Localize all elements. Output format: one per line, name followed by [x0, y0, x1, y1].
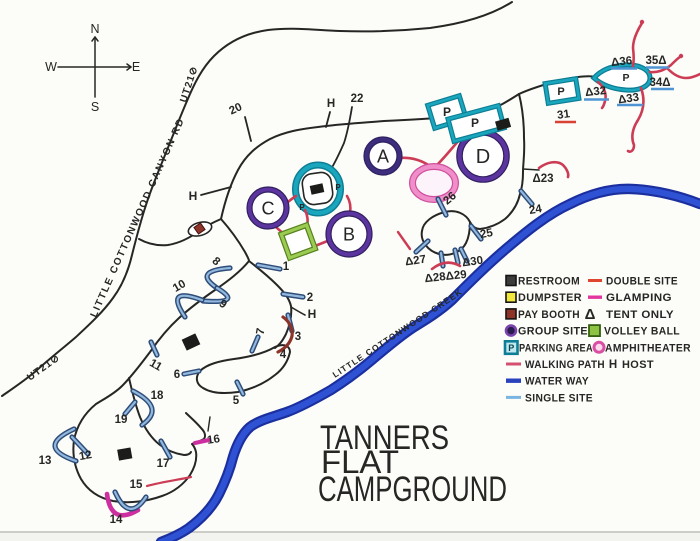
svg-text:18: 18 [151, 390, 164, 402]
svg-text:GROUP SITE: GROUP SITE [518, 326, 588, 338]
svg-text:B: B [343, 224, 355, 244]
svg-text:DUMPSTER: DUMPSTER [518, 292, 582, 304]
svg-text:AMPHITHEATER: AMPHITHEATER [605, 342, 691, 354]
svg-text:SINGLE SITE: SINGLE SITE [525, 392, 593, 404]
svg-text:HOST: HOST [622, 359, 654, 371]
svg-text:19: 19 [115, 414, 128, 426]
svg-text:P: P [557, 86, 564, 98]
svg-text:34Δ: 34Δ [649, 77, 670, 89]
svg-text:D: D [476, 146, 490, 168]
svg-text:A: A [377, 146, 389, 166]
svg-text:13: 13 [39, 455, 52, 467]
svg-text:4: 4 [280, 349, 287, 361]
svg-text:1: 1 [283, 261, 290, 273]
svg-text:31: 31 [556, 108, 571, 122]
svg-text:W: W [45, 60, 57, 74]
svg-text:H: H [308, 307, 317, 321]
svg-text:2: 2 [307, 292, 313, 304]
svg-text:PAY BOOTH: PAY BOOTH [518, 309, 580, 321]
svg-text:16: 16 [206, 433, 220, 447]
svg-text:Δ: Δ [585, 306, 596, 323]
svg-text:35Δ: 35Δ [645, 55, 666, 67]
svg-text:15: 15 [130, 479, 143, 491]
svg-text:WATER WAY: WATER WAY [525, 376, 589, 388]
svg-text:RESTROOM: RESTROOM [518, 276, 580, 288]
svg-text:H: H [189, 189, 198, 203]
svg-text:6: 6 [174, 369, 180, 381]
svg-text:P: P [508, 343, 514, 353]
svg-text:Δ23: Δ23 [532, 173, 553, 185]
svg-text:3: 3 [295, 331, 301, 343]
svg-text:PARKING AREA: PARKING AREA [519, 342, 593, 354]
svg-text:H: H [327, 98, 335, 110]
svg-text:12: 12 [78, 449, 93, 463]
svg-text:H: H [609, 359, 617, 371]
svg-text:Δ32: Δ32 [585, 85, 607, 99]
svg-text:P: P [622, 72, 629, 84]
svg-text:N: N [90, 22, 99, 36]
svg-text:TENT ONLY: TENT ONLY [606, 309, 674, 321]
svg-text:14: 14 [110, 514, 123, 526]
svg-text:GLAMPING: GLAMPING [606, 292, 672, 304]
svg-text:17: 17 [157, 458, 170, 470]
svg-text:E: E [132, 60, 140, 74]
svg-text:WALKING PATH: WALKING PATH [525, 359, 605, 371]
svg-text:CAMPGROUND: CAMPGROUND [318, 470, 507, 509]
svg-text:DOUBLE SITE: DOUBLE SITE [606, 276, 678, 288]
svg-text:VOLLEY BALL: VOLLEY BALL [604, 326, 680, 338]
svg-text:Δ36: Δ36 [611, 55, 633, 69]
svg-text:22: 22 [351, 93, 364, 105]
svg-text:P: P [471, 116, 479, 130]
svg-text:S: S [91, 100, 99, 114]
svg-text:P: P [335, 183, 341, 192]
svg-text:5: 5 [233, 395, 240, 407]
svg-text:C: C [262, 198, 275, 218]
